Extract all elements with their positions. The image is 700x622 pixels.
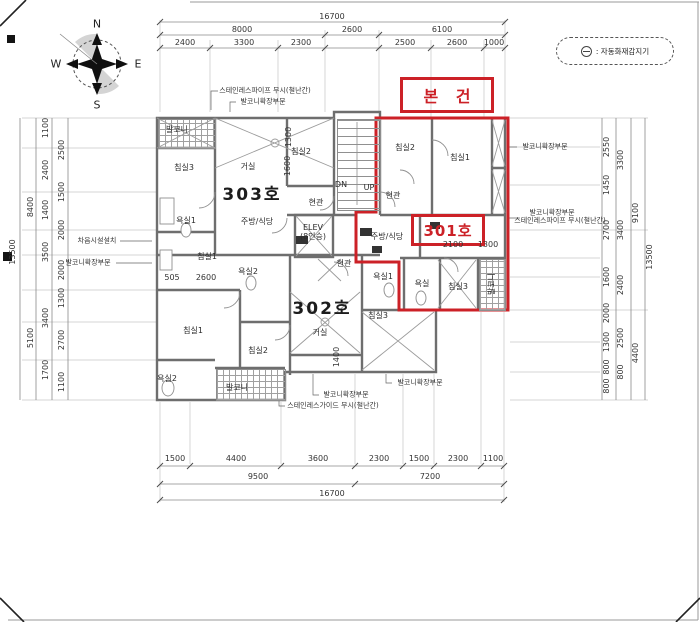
room-label: 침실3 xyxy=(368,312,388,320)
room-label: 욕실1 xyxy=(176,217,196,225)
dimension-bottom: 9500 xyxy=(248,473,268,481)
room-label: 현관 xyxy=(386,192,401,200)
dimension-interior: 1300 xyxy=(285,127,293,147)
room-label: 발코니 xyxy=(488,273,496,295)
dimension-right: 3300 xyxy=(617,150,625,170)
dimension-top: 8000 xyxy=(232,26,252,34)
dimension-top: 2600 xyxy=(447,39,467,47)
dimension-top: 2400 xyxy=(175,39,195,47)
legend-auto-fire-detector: : 자동화재감지기 xyxy=(556,37,674,65)
room-label: 거실 xyxy=(313,329,328,337)
dimension-left: 1400 xyxy=(42,200,50,220)
dimension-top: 2300 xyxy=(291,39,311,47)
dimension-left: 3400 xyxy=(42,308,50,328)
dimension-right: 4400 xyxy=(632,343,640,363)
dimension-top: 2500 xyxy=(395,39,415,47)
dimension-interior: 2600 xyxy=(196,274,216,282)
dimension-left: 5100 xyxy=(27,328,35,348)
dimension-interior: 1400 xyxy=(333,347,341,367)
dimension-left: 1500 xyxy=(58,182,66,202)
room-label: DN xyxy=(335,181,347,189)
dimension-bottom: 1500 xyxy=(165,455,185,463)
annotation-label: 스테인레스파이프 무시(철난간) xyxy=(219,87,310,94)
dimension-bottom: 2300 xyxy=(448,455,468,463)
dimension-right: 2500 xyxy=(617,328,625,348)
room-label: 욕실2 xyxy=(238,268,258,276)
dimension-bottom: 1100 xyxy=(483,455,503,463)
dimension-bottom: 16700 xyxy=(319,490,344,498)
dimension-left: 3500 xyxy=(42,242,50,262)
dimension-right: 13500 xyxy=(646,244,654,269)
annotation-label: 발코니확장부분 xyxy=(65,259,110,266)
dimension-left: 2500 xyxy=(58,140,66,160)
room-label: 침실2 xyxy=(395,144,415,152)
compass-west-label: W xyxy=(51,58,62,71)
room-label: 침실1 xyxy=(197,253,217,261)
dimension-top: 3300 xyxy=(234,39,254,47)
room-label: 발코니 xyxy=(226,384,248,392)
stair-treads xyxy=(337,119,381,211)
bathroom-fixtures xyxy=(160,198,426,396)
dimension-right: 2550 xyxy=(603,137,611,157)
annotation-label: 발코니확장부분 xyxy=(240,98,285,105)
room-label: 욕실 xyxy=(415,280,430,288)
annotation-label: 차음시설설치 xyxy=(78,237,117,244)
dimension-interior: 1300 xyxy=(478,241,498,249)
auto-fire-detector-icon xyxy=(581,46,592,57)
dimension-bottom: 2300 xyxy=(369,455,389,463)
dimension-interior: 2100 xyxy=(443,241,463,249)
room-label: 현관 xyxy=(309,199,324,207)
room-label: 침실2 xyxy=(291,148,311,156)
compass-rose: N S W E xyxy=(52,10,144,120)
room-label: UP xyxy=(364,184,375,192)
room-label: 주방/식당 xyxy=(241,218,273,226)
dimension-left: 1300 xyxy=(58,288,66,308)
dimension-right: 1300 xyxy=(603,332,611,352)
dimension-left: 1100 xyxy=(42,118,50,138)
annotation-label: 발코니확장부분 xyxy=(397,379,442,386)
annotation-label: 발코니확장부분 xyxy=(323,391,368,398)
room-label: 침실3 xyxy=(448,283,468,291)
legend-label: : 자동화재감지기 xyxy=(596,46,649,57)
annotation-label: 스테인레스파이프 무시(철난간) xyxy=(514,217,605,224)
dimension-left: 2000 xyxy=(58,220,66,240)
dimension-left: 2400 xyxy=(42,160,50,180)
dimension-right: 2000 xyxy=(603,303,611,323)
room-label: 침실1 xyxy=(450,154,470,162)
room-label: 주방/식당 xyxy=(371,233,403,241)
annotation-label: 스테인레스가이드 무시(철난간) xyxy=(287,402,378,409)
subject-building-marker: 본 건 xyxy=(400,77,494,113)
annotation-label: 발코니확장부분 xyxy=(522,143,567,150)
dimension-right: 800 xyxy=(617,364,625,379)
scan-artifact-square xyxy=(7,35,15,43)
dimension-right: 1600 xyxy=(603,267,611,287)
compass-east-label: E xyxy=(135,58,142,71)
dimension-top: 16700 xyxy=(319,13,344,21)
room-label: 욕실2 xyxy=(157,375,177,383)
dimension-right: 800 xyxy=(603,359,611,374)
dimension-right: 2400 xyxy=(617,275,625,295)
compass-south-label: S xyxy=(94,99,101,112)
room-label: 침실2 xyxy=(248,347,268,355)
room-label: (8인승) xyxy=(300,233,326,241)
dimension-left: 8400 xyxy=(27,197,35,217)
unit-number-label: 303호 xyxy=(222,187,281,205)
dimension-bottom: 7200 xyxy=(420,473,440,481)
dimension-left: 1100 xyxy=(58,372,66,392)
dimension-interior: 505 xyxy=(164,274,179,282)
dimension-left: 2700 xyxy=(58,330,66,350)
dimension-right: 1450 xyxy=(603,175,611,195)
room-label: 침실3 xyxy=(174,164,194,172)
dimension-left: 13500 xyxy=(9,239,17,264)
dimension-interior: 1600 xyxy=(284,156,292,176)
dimension-top: 2600 xyxy=(342,26,362,34)
floorplan-page: { "colors": {"accent_red": "#cc2127", "w… xyxy=(0,0,700,622)
dimension-top: 6100 xyxy=(432,26,452,34)
room-label: 현관 xyxy=(337,260,352,268)
dimension-bottom: 3600 xyxy=(308,455,328,463)
dimension-left: 1700 xyxy=(42,360,50,380)
compass-north-label: N xyxy=(93,18,101,31)
room-label: 거실 xyxy=(241,163,256,171)
dimension-right: 9100 xyxy=(632,203,640,223)
unit-number-label: 302호 xyxy=(292,301,351,319)
room-label: 발코니 xyxy=(166,126,188,134)
dimension-top: 1000 xyxy=(484,39,504,47)
dimension-right: 800 xyxy=(603,378,611,393)
dimension-bottom: 4400 xyxy=(226,455,246,463)
room-label: 욕실1 xyxy=(373,273,393,281)
dimension-right: 3400 xyxy=(617,220,625,240)
room-label: 침실1 xyxy=(183,327,203,335)
dimension-bottom: 1500 xyxy=(409,455,429,463)
